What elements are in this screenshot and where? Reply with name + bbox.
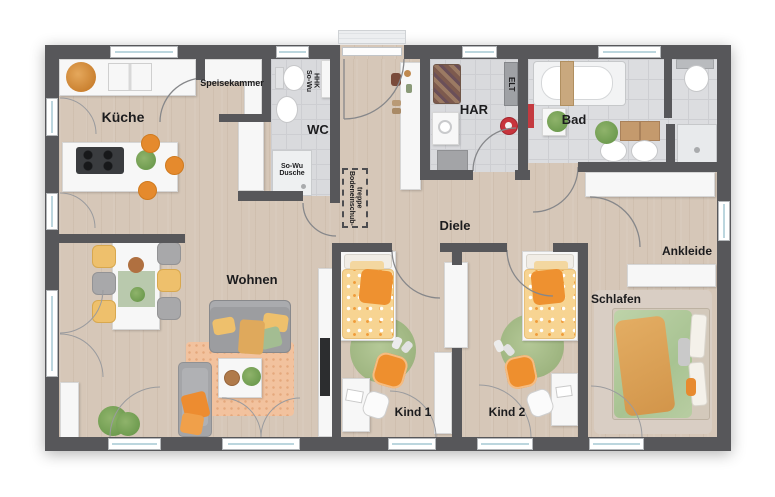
dining-chair bbox=[92, 272, 116, 295]
bag-decor bbox=[391, 73, 401, 86]
bucket-inner bbox=[505, 122, 512, 129]
wall bbox=[515, 170, 530, 180]
desk-kind2 bbox=[551, 373, 578, 426]
wall bbox=[666, 124, 675, 168]
elt-label: ELT bbox=[504, 62, 518, 106]
room-label-schlafen: Schlafen bbox=[583, 292, 649, 307]
wall bbox=[578, 243, 588, 437]
towel-radiator bbox=[528, 104, 534, 128]
sofa-throw bbox=[238, 319, 265, 355]
chaise-pillow bbox=[179, 412, 204, 436]
hallway-wardrobe bbox=[585, 172, 715, 197]
window bbox=[589, 438, 644, 450]
wall bbox=[578, 162, 717, 172]
dining-chair bbox=[157, 297, 181, 320]
toilet bbox=[684, 65, 709, 92]
window bbox=[598, 46, 661, 58]
floor-plan: Bodeneinschub- treppe ELT bbox=[0, 0, 775, 497]
bathtub-basin bbox=[541, 66, 613, 100]
wall bbox=[262, 59, 271, 122]
room-label-kueche: Küche bbox=[88, 109, 158, 125]
wardrobe-kind1 bbox=[434, 352, 452, 434]
wall bbox=[452, 243, 462, 265]
room-label-kind1: Kind 1 bbox=[387, 405, 439, 419]
wall bbox=[553, 243, 578, 252]
cooktop bbox=[76, 147, 124, 174]
dining-chair bbox=[92, 245, 116, 268]
wall bbox=[664, 59, 672, 118]
built-in-closet bbox=[444, 262, 468, 348]
bath-plant bbox=[595, 121, 618, 144]
plant-decor bbox=[406, 84, 412, 93]
laundry-basket bbox=[433, 64, 461, 104]
room-label-diele: Diele bbox=[431, 218, 479, 234]
window bbox=[110, 46, 178, 58]
decor-tray bbox=[224, 370, 240, 386]
hall-wardrobe bbox=[400, 62, 421, 190]
wall bbox=[196, 59, 205, 80]
bar-stool bbox=[138, 181, 157, 200]
wall bbox=[340, 243, 392, 252]
window bbox=[108, 438, 161, 450]
washing-machine-door bbox=[438, 120, 452, 134]
shower-drain bbox=[694, 147, 700, 153]
sink bbox=[631, 140, 658, 162]
room-label-ankleide: Ankleide bbox=[654, 244, 720, 259]
shoe-decor bbox=[392, 108, 401, 114]
window bbox=[388, 438, 436, 450]
shoe-decor bbox=[392, 100, 401, 106]
vanity-counter bbox=[620, 121, 660, 141]
toilet bbox=[283, 65, 305, 91]
floor-plant bbox=[116, 412, 140, 436]
entrance-step bbox=[338, 30, 406, 44]
wall bbox=[332, 243, 341, 437]
wall bbox=[452, 348, 462, 437]
island-plant bbox=[136, 150, 156, 170]
bar-stool bbox=[165, 156, 184, 175]
kitchen-sink bbox=[108, 63, 152, 91]
window bbox=[46, 193, 58, 230]
window bbox=[718, 201, 730, 241]
bar-stool bbox=[141, 134, 160, 153]
window bbox=[477, 438, 533, 450]
room-label-speisekammer: Speisekammer bbox=[196, 78, 268, 90]
room-label-wohnen: Wohnen bbox=[221, 272, 283, 288]
washbasin bbox=[276, 96, 298, 123]
tall-cabinet bbox=[60, 382, 79, 442]
wall bbox=[59, 234, 185, 243]
duvet-fold bbox=[530, 268, 565, 305]
ankleide-wardrobe bbox=[627, 264, 716, 287]
vase-decor bbox=[404, 70, 411, 77]
dining-chair bbox=[157, 269, 181, 292]
laptop bbox=[555, 385, 572, 398]
window bbox=[276, 46, 309, 58]
shower-drain bbox=[301, 184, 306, 189]
room-label-har: HAR bbox=[452, 102, 496, 118]
wall bbox=[440, 243, 507, 252]
attic-stairs-label: Bodeneinschub- treppe bbox=[348, 171, 363, 226]
window bbox=[46, 290, 58, 377]
wall bbox=[518, 59, 528, 170]
wall bbox=[420, 59, 430, 180]
shower bbox=[677, 124, 717, 166]
decor-bowl bbox=[128, 257, 144, 273]
attic-stairs-outline: Bodeneinschub- treppe bbox=[342, 168, 368, 228]
window bbox=[46, 98, 58, 136]
annotation-so-wu-hhk: So-Wu HHK bbox=[304, 62, 320, 100]
dining-chair bbox=[92, 300, 116, 323]
built-in-cupboard bbox=[238, 121, 264, 191]
room-label-wc: WC bbox=[302, 122, 334, 138]
room-label-kind2: Kind 2 bbox=[481, 405, 533, 419]
coffee-table-plant bbox=[242, 367, 261, 386]
bed-pillow bbox=[678, 338, 690, 366]
window bbox=[462, 46, 497, 58]
table-plant bbox=[130, 287, 145, 302]
accent-pillow bbox=[686, 378, 696, 396]
dining-chair bbox=[157, 242, 181, 265]
room-label-bad: Bad bbox=[556, 112, 592, 128]
wall bbox=[420, 170, 473, 180]
annotation-so-wu-dusche: So-Wu Dusche bbox=[272, 160, 312, 180]
fruit-basket bbox=[66, 62, 96, 92]
bed-pillow bbox=[688, 313, 707, 358]
bath-caddy bbox=[560, 61, 574, 106]
duvet-fold bbox=[358, 268, 393, 305]
storage-box bbox=[437, 150, 468, 171]
entrance-door-sill bbox=[342, 47, 402, 56]
window bbox=[222, 438, 300, 450]
tv bbox=[320, 338, 330, 396]
wall bbox=[238, 191, 303, 201]
